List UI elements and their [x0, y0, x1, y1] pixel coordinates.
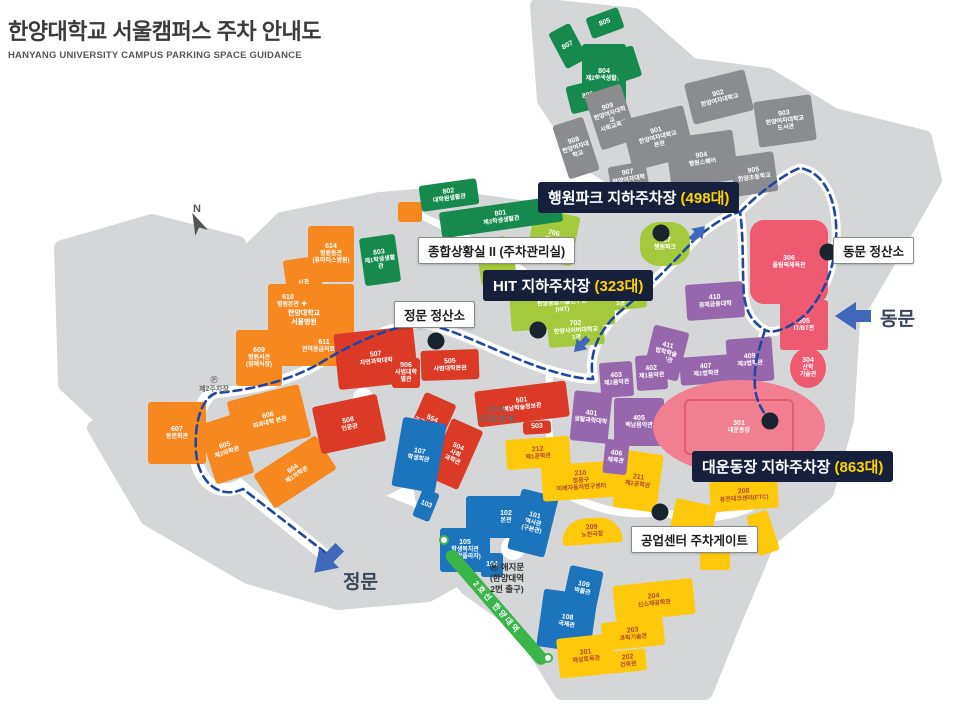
building-305: 305IT/BT관: [780, 300, 828, 350]
misc-landmark-label: Ⓜ 애지문(한양대역2번 출구): [468, 562, 546, 595]
map-header: 한양대학교 서울캠퍼스 주차 안내도 HANYANG UNIVERSITY CA…: [8, 14, 321, 61]
tollbooth-dot: [530, 322, 547, 339]
east-gate-tollbooth: 동문 정산소: [833, 237, 914, 264]
building-406: 406체육관: [602, 439, 629, 475]
building-401: 401생활과학대학: [569, 390, 612, 444]
misc-compass-label: N: [182, 202, 212, 216]
tollbooth-dot: [653, 225, 670, 242]
building-506: 506사범대학별관: [392, 358, 420, 388]
building-306: 306올림픽체육관: [750, 220, 828, 304]
haengwon-park-parking: 행원파크 지하주차장 (498대): [538, 182, 739, 213]
building-402: 402제1음악관: [635, 354, 668, 391]
tollbooth-dot: [428, 333, 445, 350]
campus-map: 신관614병원동관(류마티스병원)610병원본관611권역응급의료센터609병원…: [0, 0, 968, 707]
misc-note-label: 사자가군것질 할 때: [464, 406, 528, 424]
building-409: 409제3법학관: [726, 336, 775, 383]
building-903: 903한양여자대학교도서관: [753, 94, 817, 148]
building-803: 803제1학생생활관: [359, 234, 401, 287]
tollbooth-dot: [762, 413, 779, 430]
building-410: 410경제금융대학: [685, 281, 745, 321]
hit-parking: HIT 지하주차장 (323대): [483, 270, 653, 301]
building-908: 908한양여자대학교: [552, 116, 600, 179]
main-gate-label: 정문: [343, 567, 378, 594]
tollbooth-dot: [652, 504, 669, 521]
page-subtitle: HANYANG UNIVERSITY CAMPUS PARKING SPACE …: [8, 50, 321, 61]
main-gate-tollbooth: 정문 정산소: [394, 301, 475, 328]
building-607: 607동문회관: [148, 402, 206, 464]
building-805: 805: [585, 7, 624, 39]
misc-hospital-label: ✚한양대학교서울병원: [262, 300, 346, 327]
building-702: 702한양사이버대학교1관: [547, 314, 605, 348]
building-209: 209노천극장: [561, 516, 623, 546]
building-902: 902한양여자대학교: [684, 69, 754, 125]
page-title: 한양대학교 서울캠퍼스 주차 안내도: [8, 14, 321, 46]
building-505: 505사범대학본관: [420, 349, 479, 381]
building-304: 304산학기술관: [790, 348, 826, 388]
building-614: 614병원동관(류마티스병원): [308, 226, 354, 282]
industry-center-gate: 공업센터 주차게이트: [631, 526, 758, 553]
stadium-parking: 대운동장 지하주차장 (863대): [692, 451, 893, 482]
building-802: 802대학원생활관: [418, 178, 479, 212]
east-gate-label: 동문: [880, 304, 915, 331]
building-201: 201재성토목관: [556, 633, 616, 679]
building-904: 904행원스퀘어: [665, 130, 739, 189]
misc-note-label: Ⓟ제2주차장: [182, 376, 246, 394]
parking-control-room: 종합상황실 II (주차관리실): [418, 237, 575, 264]
building-204: 204신소재공학관: [612, 578, 695, 622]
building-508: 508인문관: [312, 394, 387, 455]
building-block: [398, 202, 422, 222]
building-208: 208퓨전테크센터(FTC): [709, 478, 779, 513]
building-103: 103: [412, 488, 440, 523]
